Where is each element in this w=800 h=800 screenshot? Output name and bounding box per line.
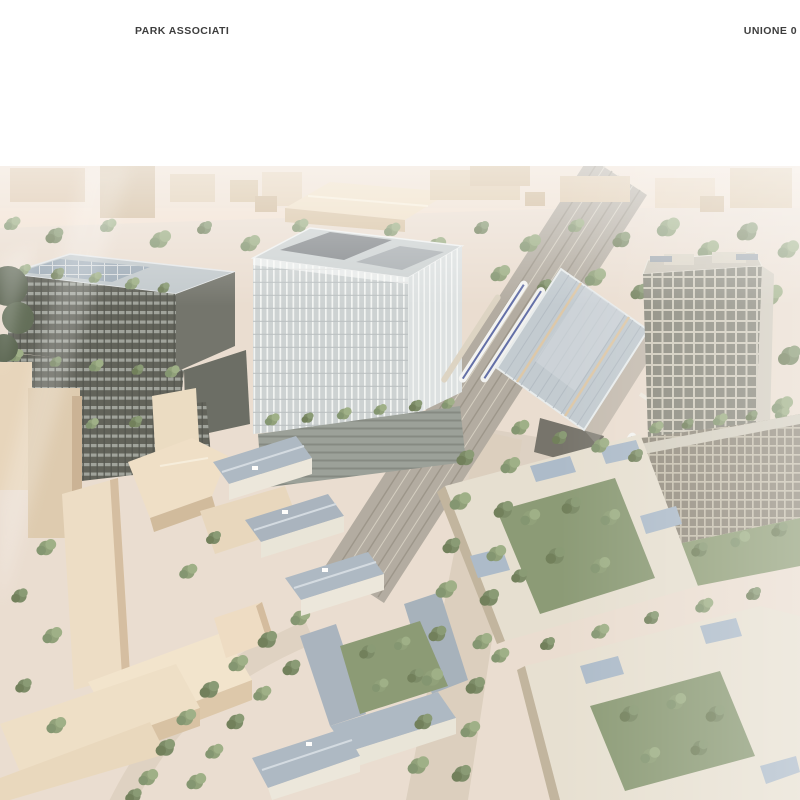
site-header: PARK ASSOCIATI UNIONE 0 bbox=[0, 0, 800, 166]
render-aerial-view bbox=[0, 166, 800, 800]
project-title-link[interactable]: UNIONE 0 bbox=[744, 25, 797, 37]
page: PARK ASSOCIATI UNIONE 0 bbox=[0, 0, 800, 800]
render-haze-overlay bbox=[0, 166, 800, 800]
brand-logo-link[interactable]: PARK ASSOCIATI bbox=[135, 25, 229, 37]
project-hero-image[interactable] bbox=[0, 166, 800, 800]
